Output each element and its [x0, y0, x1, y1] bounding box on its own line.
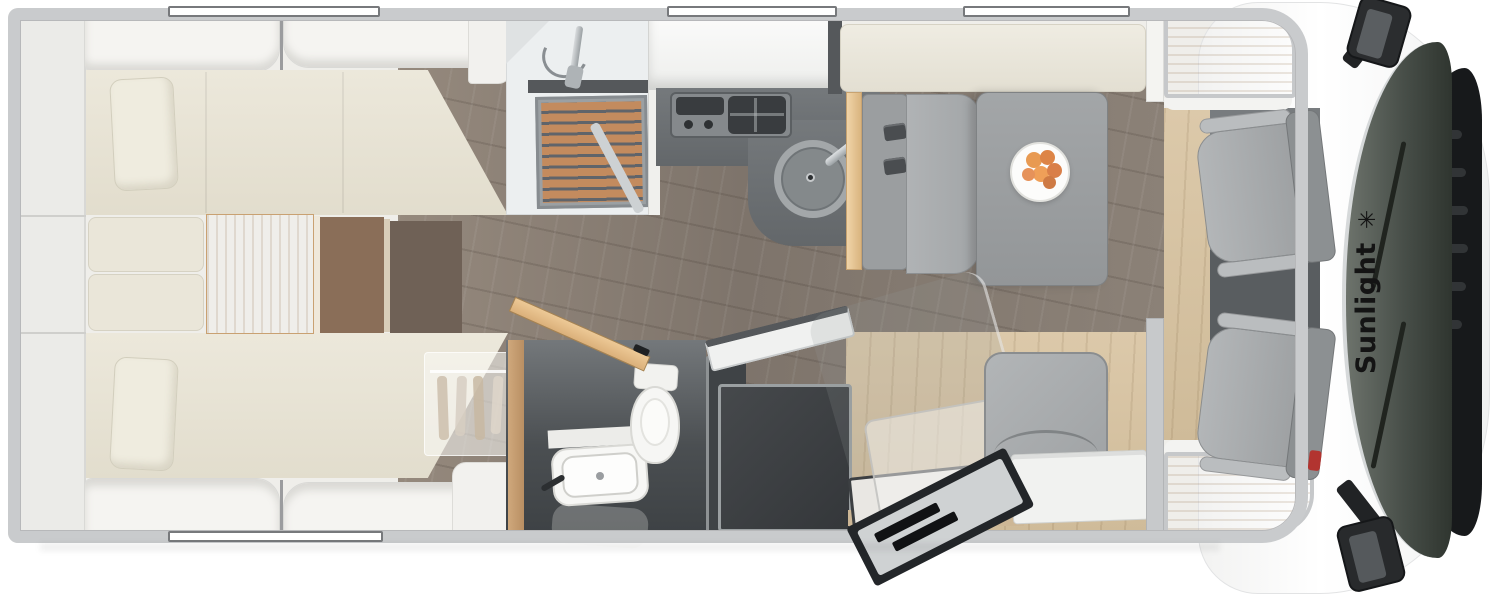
mirror-glass [1348, 530, 1387, 583]
ground-shadow [40, 543, 1220, 551]
mirror-glass [1355, 8, 1393, 59]
brand-star-icon: ✳ [1355, 210, 1381, 229]
window [168, 6, 380, 17]
seatbelt-tab [1308, 450, 1322, 471]
motorhome-floorplan: Sunlight ✳ [0, 0, 1500, 598]
window [963, 6, 1130, 17]
window [667, 6, 837, 17]
habitation-wall-frame [8, 8, 1308, 543]
window [168, 531, 383, 542]
brand-logo: Sunlight ✳ [1351, 182, 1385, 402]
brand-logo-text: Sunlight [1351, 242, 1382, 374]
